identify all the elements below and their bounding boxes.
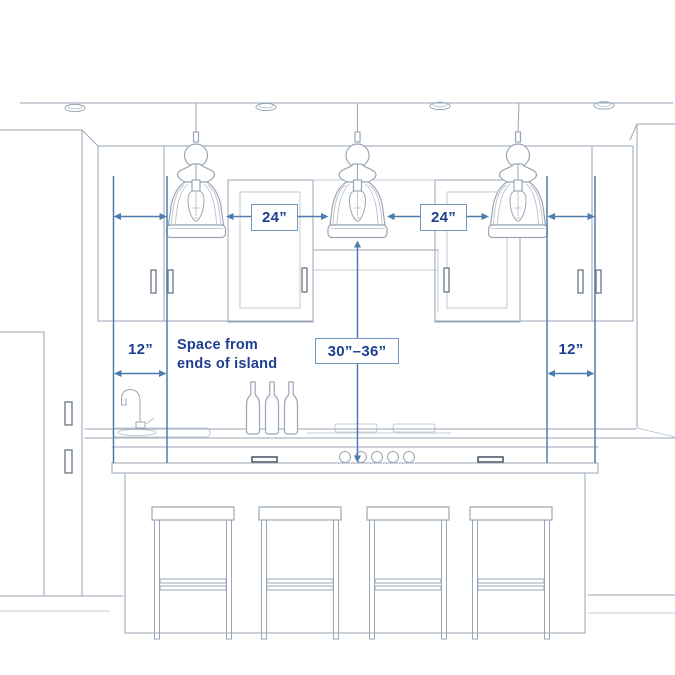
cooktop-knob-icon bbox=[372, 452, 383, 463]
pendant-light-icon bbox=[167, 132, 226, 238]
wine-bottles bbox=[247, 382, 298, 434]
bar-stool bbox=[470, 507, 552, 639]
pendant-height-label: 30”–36” bbox=[315, 338, 399, 364]
cooktop-knob-icon bbox=[340, 452, 351, 463]
kitchen-island bbox=[0, 463, 675, 633]
drawer-handle-icon bbox=[478, 457, 503, 462]
bar-stools bbox=[152, 507, 552, 639]
island-end-gap-label-left: 12” bbox=[114, 341, 167, 358]
cooktop-knob-icon bbox=[404, 452, 415, 463]
pendant-light-icon bbox=[489, 132, 548, 238]
pendant-lights bbox=[167, 103, 548, 238]
pendant-light-icon bbox=[328, 132, 387, 238]
cabinet-handle-icon bbox=[151, 270, 156, 293]
pantry-cabinet bbox=[0, 332, 72, 596]
pendant-spacing-diagram: 24” 24” 30”–36” 12” 12” Space from ends … bbox=[0, 0, 675, 675]
floor-lines bbox=[0, 595, 675, 613]
cabinet-handle-icon bbox=[578, 270, 583, 293]
cabinet-handle-icon bbox=[596, 270, 601, 293]
cooktop bbox=[307, 424, 451, 463]
cooktop-knob-icon bbox=[388, 452, 399, 463]
pendant-gap-label-left: 24” bbox=[251, 204, 298, 231]
bar-stool bbox=[367, 507, 449, 639]
ceiling bbox=[20, 102, 673, 112]
island-end-gap-label-right: 12” bbox=[547, 341, 595, 358]
faucet bbox=[122, 390, 155, 429]
drawer-handle-icon bbox=[252, 457, 277, 462]
cabinet-handle-icon bbox=[168, 270, 173, 293]
range-hood bbox=[313, 250, 438, 312]
pendant-gap-label-right: 24” bbox=[420, 204, 467, 231]
cabinet-handle-icon bbox=[65, 402, 72, 425]
bar-stool bbox=[259, 507, 341, 639]
recessed-light-icon bbox=[65, 104, 85, 112]
cabinet-handle-icon bbox=[302, 268, 307, 292]
recessed-light-icon bbox=[256, 103, 276, 111]
bar-stool bbox=[152, 507, 234, 639]
cabinet-handle-icon bbox=[444, 268, 449, 292]
island-end-note: Space from ends of island bbox=[177, 336, 277, 373]
countertop bbox=[85, 382, 675, 463]
cabinet-handle-icon bbox=[65, 450, 72, 473]
